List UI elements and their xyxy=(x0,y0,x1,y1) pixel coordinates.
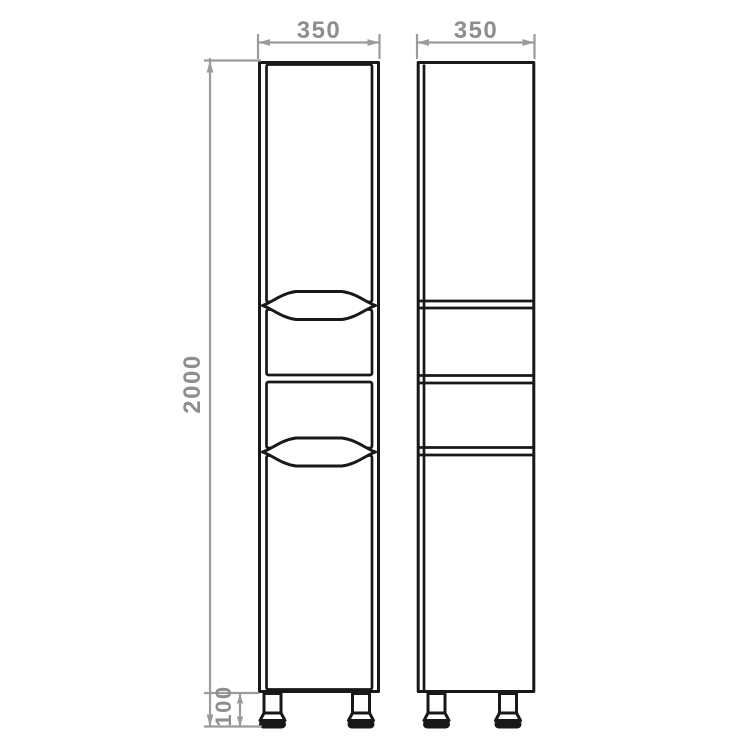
side-depth-label: 350 xyxy=(454,17,499,44)
side-right-foot xyxy=(495,694,522,729)
drawing-page: 350 350 2000 xyxy=(0,0,750,750)
arrow-left-icon xyxy=(417,39,429,46)
cabinet-dimension-drawing: 350 350 2000 xyxy=(0,0,750,750)
upper-handle xyxy=(263,292,376,320)
overall-height-label: 2000 xyxy=(179,354,206,413)
dim-overall-height: 2000 xyxy=(179,58,261,727)
arrow-right-icon xyxy=(523,39,535,46)
arrow-left-icon xyxy=(258,39,270,46)
front-left-foot xyxy=(259,694,286,729)
front-lower-door-panel xyxy=(267,456,373,690)
dim-side-depth: 350 xyxy=(417,17,535,59)
front-view xyxy=(259,63,379,729)
dim-leg-height: 100 xyxy=(204,685,262,726)
side-left-foot xyxy=(423,694,450,729)
dimension-annotations: 350 350 2000 xyxy=(179,17,535,727)
front-upper-door-panel xyxy=(267,65,373,303)
front-right-foot xyxy=(348,694,375,729)
leg-height-label: 100 xyxy=(211,685,236,726)
front-carcass-outline xyxy=(260,63,379,692)
front-width-label: 350 xyxy=(297,17,342,44)
arrow-up-icon xyxy=(237,694,243,704)
arrow-right-icon xyxy=(368,39,380,46)
lower-handle xyxy=(263,438,376,466)
arrow-down-icon xyxy=(237,717,243,727)
dim-front-width: 350 xyxy=(258,17,380,59)
side-view xyxy=(418,63,534,729)
side-carcass-outline xyxy=(418,63,534,692)
arrow-up-icon xyxy=(207,61,214,73)
